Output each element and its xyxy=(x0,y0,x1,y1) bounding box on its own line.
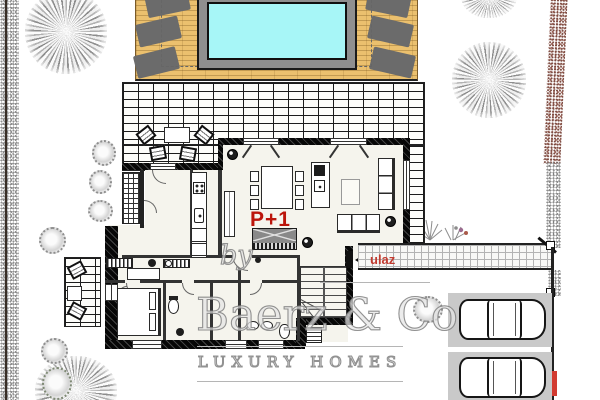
shrub xyxy=(89,170,112,194)
partition-bed-bath xyxy=(163,283,166,340)
tree xyxy=(452,42,526,118)
tree xyxy=(25,0,107,74)
car xyxy=(459,357,546,398)
entry-door xyxy=(346,251,353,268)
partition-corridor-bottom xyxy=(105,280,125,283)
pillow xyxy=(149,292,156,310)
potted-plant xyxy=(302,237,313,248)
site-plan: ulaz P+1 by Baerz & Co LUXURY HOMES xyxy=(0,0,600,400)
hedge-right-mid xyxy=(546,162,561,248)
roof-projection-line xyxy=(161,0,162,67)
partition-corridor-bottom xyxy=(140,280,182,283)
partition-corridor-bottom xyxy=(262,280,300,283)
tree xyxy=(461,0,517,18)
wall-connector xyxy=(218,144,223,170)
bush xyxy=(42,367,72,400)
pool-water xyxy=(207,2,347,60)
patio-table xyxy=(67,286,82,301)
watermark-rule xyxy=(197,381,403,382)
tiled-side-strip xyxy=(122,172,140,224)
wardrobe xyxy=(127,268,160,280)
french-door-opening xyxy=(330,138,367,145)
floor-drain xyxy=(176,328,184,336)
wall-cabinet xyxy=(224,191,235,237)
car xyxy=(459,299,546,340)
hedge-right-upper xyxy=(543,0,567,164)
sofa-vertical xyxy=(378,158,395,210)
shrub xyxy=(88,200,113,222)
dining-chair xyxy=(250,185,259,196)
dining-chair xyxy=(295,199,304,210)
dining-chair xyxy=(295,185,304,196)
window-right xyxy=(403,160,410,210)
shrub xyxy=(41,338,68,364)
stove xyxy=(193,182,205,194)
potted-plant xyxy=(385,216,396,227)
hedge-left-line xyxy=(5,0,7,400)
kitchen-island xyxy=(311,162,330,208)
kitchen-sink xyxy=(194,208,204,223)
window-bottom xyxy=(258,340,284,349)
shrub xyxy=(39,227,66,254)
dining-table xyxy=(261,166,293,209)
roof-projection-line xyxy=(161,66,198,67)
terrace-chair xyxy=(149,145,167,162)
terrace-table xyxy=(164,127,190,143)
radiator xyxy=(106,258,133,268)
potted-plant xyxy=(227,149,238,160)
kitchen-appliance xyxy=(191,228,207,242)
kitchen-appliance xyxy=(191,243,207,256)
ceiling-light-ring xyxy=(165,260,172,267)
window-bottom xyxy=(132,340,162,349)
sofa-horizontal xyxy=(337,214,380,233)
double-bed xyxy=(117,288,161,336)
floor-label: P+1 xyxy=(250,209,291,230)
flower-tuft xyxy=(441,222,473,242)
watermark-brand: Baerz & Co xyxy=(196,288,458,341)
sideboard xyxy=(252,228,297,250)
ceiling-light xyxy=(148,259,156,267)
watermark-rule xyxy=(197,346,403,347)
window-bottom xyxy=(225,340,247,349)
entrance-label: ulaz xyxy=(370,253,395,266)
watermark-by: by xyxy=(220,240,253,271)
kitchen-floor xyxy=(145,170,222,260)
dining-chair xyxy=(295,171,304,182)
headboard xyxy=(158,289,160,335)
island-hob xyxy=(314,165,325,176)
ceiling-light xyxy=(255,257,261,263)
partition-corridor-top xyxy=(122,255,232,258)
toilet-tank xyxy=(169,296,178,300)
rug xyxy=(341,179,360,205)
partition-corridor-bottom xyxy=(194,280,250,283)
terrace-chair xyxy=(179,146,197,163)
watermark-tagline: LUXURY HOMES xyxy=(197,353,403,371)
wall-left-upper xyxy=(140,170,144,228)
toilet xyxy=(168,299,179,314)
french-door-opening xyxy=(243,138,279,145)
dining-chair xyxy=(250,171,259,182)
island-sink xyxy=(314,180,325,192)
terrace-door-opening xyxy=(150,163,176,170)
shrub xyxy=(92,140,116,166)
hedge-left xyxy=(0,0,19,400)
watermark-rule xyxy=(320,282,430,283)
sideboard-hatch xyxy=(253,243,296,249)
pool-frame xyxy=(197,0,357,70)
roof-projection-line xyxy=(371,0,372,67)
pillow xyxy=(149,313,156,331)
